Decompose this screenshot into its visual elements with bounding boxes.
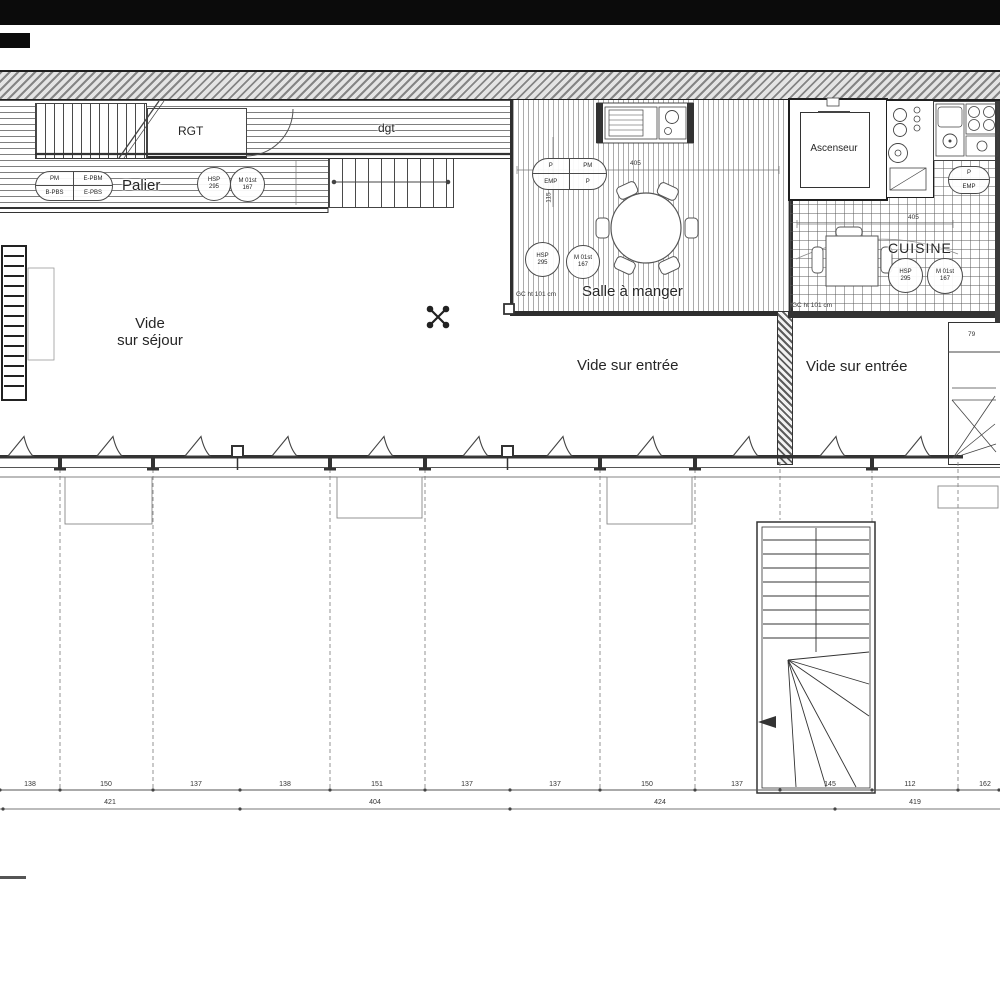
stair-lower-winder <box>757 522 875 793</box>
room-label-cuisine: CUISINE <box>888 240 952 256</box>
door-tag-cell: EMP <box>533 174 570 189</box>
door-tag-cell: PM <box>570 159 607 174</box>
tag-line: HSP <box>899 269 911 276</box>
tag-line: M 01st <box>238 178 256 185</box>
dim-top-11: 162 <box>979 781 991 788</box>
door-tag-cell: P <box>949 167 989 180</box>
dim-bottom-2: 424 <box>654 799 666 806</box>
dim-top-5: 137 <box>461 781 473 788</box>
dining-counter <box>596 103 694 143</box>
planter-boxes <box>65 477 998 524</box>
note-gc-dining: GC ht 101 cm <box>516 291 556 298</box>
door-tag-cell: P <box>570 174 607 189</box>
void-label-sejour-line2: sur séjour <box>90 332 210 349</box>
door-tag-cell: PM <box>36 172 74 186</box>
kitchen-counter-detail <box>936 104 998 156</box>
floor-plan: RGT Palier dgt Salle à manger CUISINE As… <box>0 0 1000 1000</box>
stair-shaft-east-detail <box>948 352 1000 458</box>
note-shaft-dim: 79 <box>968 331 975 338</box>
dim-bottom-3: 419 <box>909 799 921 806</box>
dim-top-10: 112 <box>904 781 915 788</box>
dim-top-8: 137 <box>731 781 743 788</box>
dim-bottom-0: 421 <box>104 799 116 806</box>
door-tag-palier: PM E-PBM B-PBS E-PBS <box>35 171 113 201</box>
tag-circle-hsp: HSP 295 <box>197 167 231 201</box>
void-label-sejour: Vide sur séjour <box>90 315 210 349</box>
door-tag-cell: B-PBS <box>36 186 74 200</box>
tag-line: 167 <box>940 276 950 283</box>
void-label-sejour-line1: Vide <box>90 315 210 332</box>
dining-table <box>596 180 698 275</box>
tag-line: 167 <box>578 262 588 269</box>
door-tag-cell: EMP <box>949 180 989 193</box>
tag-line: HSP <box>208 177 220 184</box>
dim-top-1: 150 <box>100 781 112 788</box>
tag-line: 295 <box>537 260 547 267</box>
dim-top-4: 151 <box>371 781 383 788</box>
dim-top-6: 137 <box>549 781 561 788</box>
dim-bottom-1: 404 <box>369 799 381 806</box>
room-label-salle-a-manger: Salle à manger <box>582 283 683 300</box>
note-dining-width: 405 <box>630 160 641 167</box>
door-tag-cell: E-PBM <box>74 172 112 186</box>
dimension-lines <box>0 788 1000 879</box>
void-label-entree-right: Vide sur entrée <box>806 358 907 375</box>
utility-detail <box>889 107 927 190</box>
tag-line: 295 <box>900 276 910 283</box>
left-ladder <box>2 246 54 400</box>
wall-corner-block <box>504 304 514 314</box>
door-tag-cell: E-PBS <box>74 186 112 200</box>
door-tag-dining: P PM EMP P <box>532 158 607 190</box>
tag-circle-hsp: HSP 295 <box>888 258 923 293</box>
dim-top-2: 137 <box>190 781 202 788</box>
note-dining-depth: 115 <box>546 192 553 202</box>
tag-circle-m01: M 01st 167 <box>927 258 963 294</box>
tag-circle-m01: M 01st 167 <box>230 167 265 202</box>
room-label-rgt: RGT <box>178 124 203 138</box>
void-label-entree-center: Vide sur entrée <box>577 357 678 374</box>
balcony-railing <box>0 437 1000 478</box>
note-gc-kitchen: GC ht 101 cm <box>792 302 832 309</box>
dim-top-3: 138 <box>279 781 291 788</box>
tag-line: HSP <box>536 253 548 260</box>
room-label-palier: Palier <box>122 177 160 194</box>
tag-line: 167 <box>242 185 252 192</box>
dim-top-7: 150 <box>641 781 653 788</box>
dim-top-0: 138 <box>24 781 36 788</box>
tag-circle-hsp: HSP 295 <box>525 242 560 277</box>
door-tag-kitchen: P EMP <box>948 166 990 194</box>
room-label-ascenseur: Ascenseur <box>800 143 868 154</box>
elevator-detail <box>818 98 850 112</box>
tag-line: M 01st <box>936 269 954 276</box>
cross-symbol <box>427 306 449 328</box>
door-tag-cell: P <box>533 159 570 174</box>
kitchen-table <box>812 227 892 286</box>
tag-circle-m01: M 01st 167 <box>566 245 600 279</box>
tag-line: M 01st <box>574 255 592 262</box>
note-kitchen-width: 405 <box>908 214 919 221</box>
room-label-dgt: dgt <box>378 121 395 135</box>
door-arc-rgt <box>246 109 293 156</box>
dim-top-9: 145 <box>824 781 836 788</box>
tag-line: 295 <box>209 184 219 191</box>
